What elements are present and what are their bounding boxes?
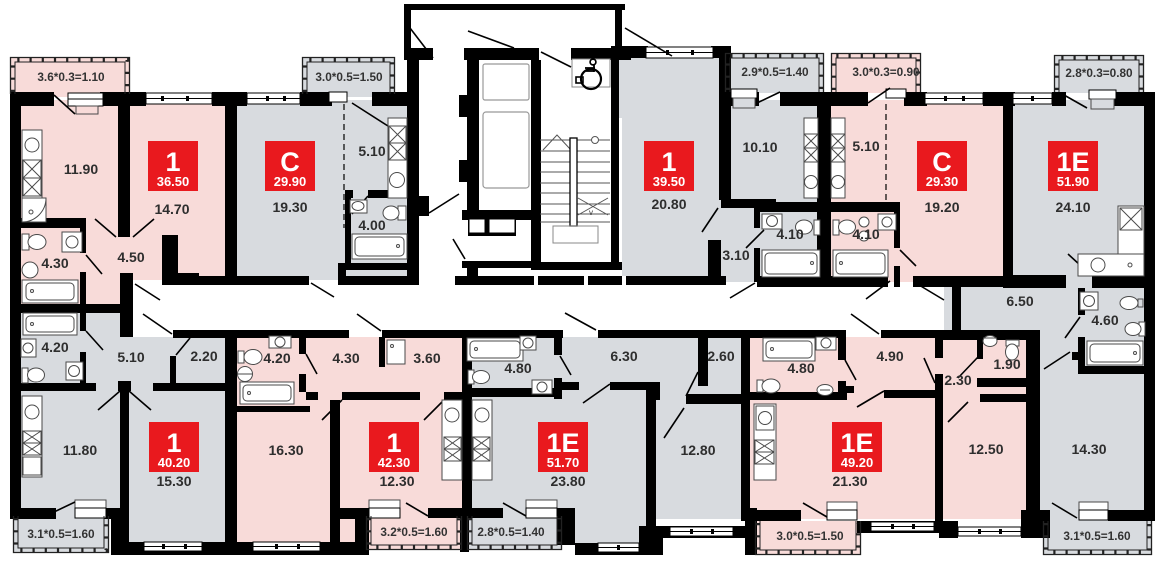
svg-text:24.10: 24.10 bbox=[1055, 199, 1090, 215]
svg-text:40.20: 40.20 bbox=[158, 455, 191, 470]
svg-text:3.60: 3.60 bbox=[413, 350, 440, 366]
svg-text:5.10: 5.10 bbox=[358, 143, 385, 159]
svg-text:4.30: 4.30 bbox=[332, 350, 359, 366]
svg-text:42.30: 42.30 bbox=[378, 455, 411, 470]
svg-text:4.10: 4.10 bbox=[776, 226, 803, 242]
svg-text:C: C bbox=[932, 147, 952, 177]
svg-text:29.90: 29.90 bbox=[274, 174, 307, 189]
svg-text:6.30: 6.30 bbox=[610, 348, 637, 364]
svg-text:3.6*0.3=1.10: 3.6*0.3=1.10 bbox=[37, 70, 105, 84]
svg-text:1: 1 bbox=[386, 428, 401, 458]
svg-text:2.9*0.5=1.40: 2.9*0.5=1.40 bbox=[741, 65, 809, 79]
svg-text:4.80: 4.80 bbox=[504, 360, 531, 376]
svg-text:5.10: 5.10 bbox=[117, 349, 144, 365]
svg-text:4.10: 4.10 bbox=[852, 226, 879, 242]
svg-text:14.30: 14.30 bbox=[1071, 441, 1106, 457]
svg-text:19.20: 19.20 bbox=[924, 199, 959, 215]
svg-text:19.30: 19.30 bbox=[272, 199, 307, 215]
svg-text:2.60: 2.60 bbox=[707, 348, 734, 364]
svg-text:16.30: 16.30 bbox=[268, 442, 303, 458]
svg-text:4.60: 4.60 bbox=[1091, 312, 1118, 328]
svg-text:23.80: 23.80 bbox=[550, 473, 585, 489]
svg-text:2.8*0.3=0.80: 2.8*0.3=0.80 bbox=[1065, 66, 1133, 80]
svg-text:2.20: 2.20 bbox=[190, 348, 217, 364]
svg-text:4.30: 4.30 bbox=[41, 255, 68, 271]
svg-text:1.90: 1.90 bbox=[993, 356, 1020, 372]
svg-text:12.80: 12.80 bbox=[680, 442, 715, 458]
svg-text:12.50: 12.50 bbox=[968, 441, 1003, 457]
svg-text:4.50: 4.50 bbox=[117, 249, 144, 265]
svg-text:4.20: 4.20 bbox=[263, 350, 290, 366]
svg-text:5.10: 5.10 bbox=[852, 138, 879, 154]
svg-text:11.90: 11.90 bbox=[64, 161, 98, 177]
svg-text:51.90: 51.90 bbox=[1057, 174, 1090, 189]
svg-text:1E: 1E bbox=[840, 428, 873, 458]
svg-text:6.50: 6.50 bbox=[1006, 293, 1033, 309]
svg-text:4.80: 4.80 bbox=[787, 360, 814, 376]
svg-text:3.0*0.3=0.90: 3.0*0.3=0.90 bbox=[852, 65, 920, 79]
svg-text:20.80: 20.80 bbox=[651, 196, 686, 212]
svg-text:21.30: 21.30 bbox=[832, 473, 867, 489]
svg-text:3.1*0.5=1.60: 3.1*0.5=1.60 bbox=[1063, 529, 1131, 543]
svg-text:v: v bbox=[589, 208, 593, 217]
svg-text:36.50: 36.50 bbox=[157, 174, 190, 189]
svg-text:2.30: 2.30 bbox=[944, 372, 971, 388]
svg-text:12.30: 12.30 bbox=[379, 473, 414, 489]
svg-text:2.8*0.5=1.40: 2.8*0.5=1.40 bbox=[477, 525, 545, 539]
svg-text:1E: 1E bbox=[546, 428, 579, 458]
svg-text:4.00: 4.00 bbox=[358, 217, 385, 233]
svg-text:15.30: 15.30 bbox=[156, 473, 191, 489]
svg-text:39.50: 39.50 bbox=[653, 174, 686, 189]
svg-text:11.80: 11.80 bbox=[63, 442, 97, 458]
svg-text:51.70: 51.70 bbox=[547, 455, 580, 470]
svg-text:10.10: 10.10 bbox=[742, 139, 777, 155]
svg-text:4.20: 4.20 bbox=[41, 339, 68, 355]
svg-text:1: 1 bbox=[661, 147, 676, 177]
svg-text:14.70: 14.70 bbox=[154, 201, 189, 217]
svg-text:3.2*0.5=1.60: 3.2*0.5=1.60 bbox=[380, 525, 448, 539]
svg-text:3.1*0.5=1.60: 3.1*0.5=1.60 bbox=[27, 527, 95, 541]
svg-text:1E: 1E bbox=[1056, 147, 1089, 177]
svg-text:3.0*0.5=1.50: 3.0*0.5=1.50 bbox=[315, 70, 383, 84]
svg-text:4.90: 4.90 bbox=[876, 348, 903, 364]
svg-text:49.20: 49.20 bbox=[841, 455, 874, 470]
svg-text:1: 1 bbox=[166, 428, 181, 458]
svg-text:C: C bbox=[280, 147, 300, 177]
svg-text:3.10: 3.10 bbox=[722, 247, 749, 263]
svg-text:29.30: 29.30 bbox=[926, 174, 959, 189]
svg-text:1: 1 bbox=[165, 147, 180, 177]
svg-text:3.0*0.5=1.50: 3.0*0.5=1.50 bbox=[776, 529, 844, 543]
